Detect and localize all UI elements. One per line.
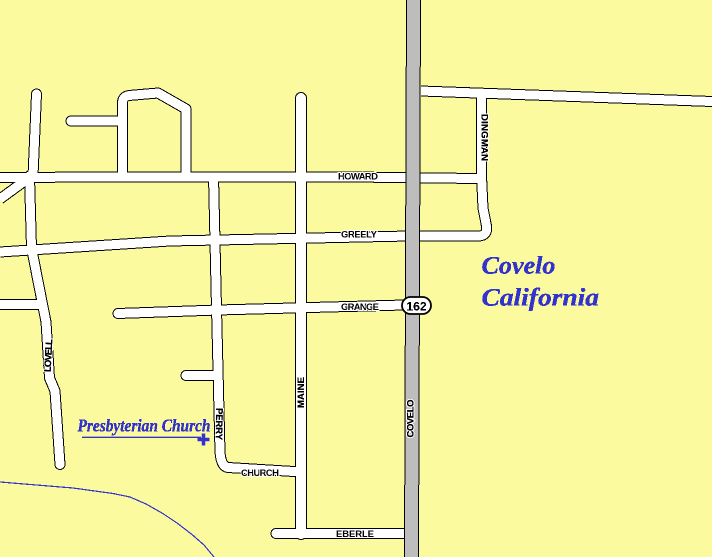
svg-text:LOVELL: LOVELL bbox=[43, 339, 56, 373]
svg-text:EBERLE: EBERLE bbox=[336, 529, 374, 540]
svg-text:DINGMAN: DINGMAN bbox=[479, 114, 490, 161]
svg-text:HOWARD: HOWARD bbox=[338, 172, 378, 183]
svg-text:MAINE: MAINE bbox=[296, 377, 307, 408]
svg-text:GRANGE: GRANGE bbox=[341, 302, 379, 313]
svg-text:CHURCH: CHURCH bbox=[241, 468, 279, 479]
svg-text:COVELO: COVELO bbox=[406, 400, 417, 438]
svg-text:Covelo: Covelo bbox=[482, 253, 556, 280]
svg-text:162: 162 bbox=[406, 299, 427, 313]
svg-text:California: California bbox=[482, 285, 600, 312]
svg-text:Presbyterian Church: Presbyterian Church bbox=[77, 416, 211, 436]
svg-text:PERRY: PERRY bbox=[213, 408, 225, 441]
svg-text:GREELY: GREELY bbox=[341, 230, 378, 241]
